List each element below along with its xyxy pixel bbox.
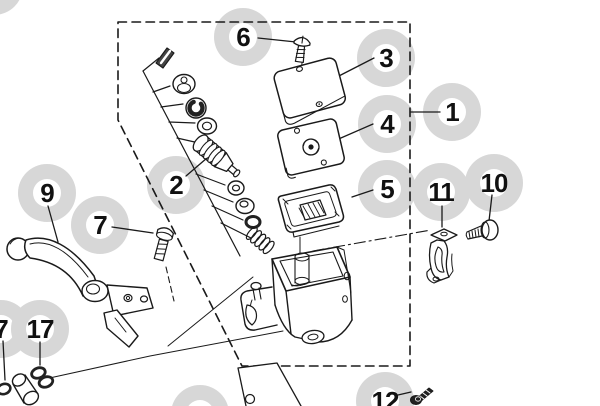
diaphragm [278, 185, 343, 237]
callout-17[interactable]: 17 [11, 300, 69, 358]
parts-diagram-canvas: 63142597101171712 [0, 0, 600, 406]
callout-12[interactable]: 12 [356, 372, 414, 406]
callout-label: 12 [372, 388, 399, 406]
diaphragm-plate [277, 118, 347, 179]
callout-cutoff[interactable] [0, 0, 23, 15]
callout-label: 5 [380, 176, 393, 202]
master-cylinder-body [241, 247, 352, 345]
callout-label: 2 [169, 172, 182, 198]
callout-label: 9 [40, 180, 53, 206]
callout-label: 7 [0, 316, 8, 342]
callout-1[interactable]: 1 [423, 83, 481, 141]
lever-pivot-bolt [150, 226, 174, 262]
callout-9[interactable]: 9 [18, 164, 76, 222]
kit-seal [246, 217, 260, 228]
callout-10[interactable]: 10 [465, 154, 523, 212]
piston-kit-comb-line [143, 58, 251, 256]
callout-label: 10 [481, 170, 508, 196]
kit-spring [245, 225, 276, 255]
kit-washer [198, 118, 217, 134]
callout-label: 1 [445, 99, 458, 125]
clamp-bolt [466, 220, 498, 240]
kit-ring [228, 181, 244, 195]
callout-label: 6 [236, 24, 249, 50]
pivot-bushings [30, 365, 54, 391]
callout-2[interactable]: 2 [147, 156, 205, 214]
callout-cutoff[interactable] [171, 385, 229, 406]
callout-6[interactable]: 6 [214, 8, 272, 66]
reservoir-cap [273, 57, 349, 126]
cap-screw [291, 35, 310, 63]
callout-label: 7 [93, 212, 106, 238]
callout-11[interactable]: 11 [412, 163, 470, 221]
kit-boot [173, 75, 195, 94]
handlebar-clamp [427, 229, 457, 283]
kit-cup-seal [236, 199, 254, 214]
pivot-washer [0, 382, 12, 396]
lever-end-collar [10, 371, 41, 406]
callout-4[interactable]: 4 [358, 95, 416, 153]
callout-3[interactable]: 3 [357, 29, 415, 87]
callout-label: 17 [27, 316, 54, 342]
callout-5[interactable]: 5 [358, 160, 416, 218]
callout-label: 4 [380, 111, 393, 137]
callout-label: 11 [428, 179, 454, 205]
body-lower-extension [238, 363, 301, 406]
kit-pin [156, 48, 174, 68]
callout-label: 3 [379, 45, 392, 71]
callout-7[interactable]: 7 [71, 196, 129, 254]
kit-circlip [186, 98, 206, 118]
